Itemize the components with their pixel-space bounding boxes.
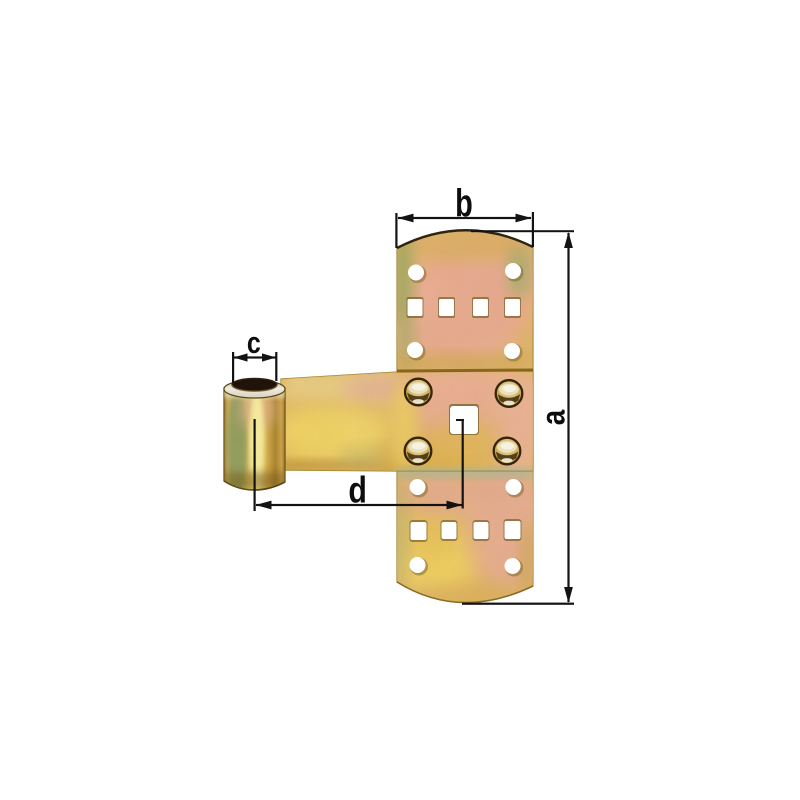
svg-text:c: c — [247, 326, 261, 360]
svg-text:a: a — [535, 409, 572, 425]
svg-text:d: d — [348, 470, 367, 512]
svg-text:b: b — [455, 183, 473, 226]
